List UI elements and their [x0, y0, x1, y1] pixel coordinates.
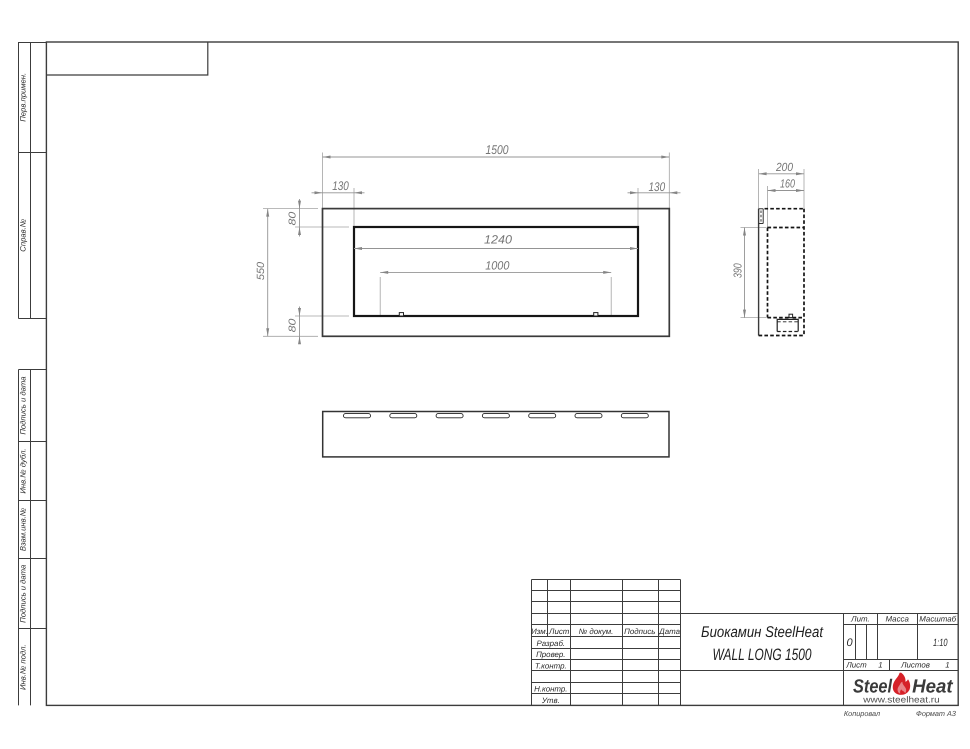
- svg-text:390: 390: [733, 263, 745, 278]
- svg-text:WALL LONG 1500: WALL LONG 1500: [713, 646, 813, 664]
- svg-text:Справ.№: Справ.№: [19, 218, 28, 251]
- svg-text:Инв.№ подл.: Инв.№ подл.: [19, 644, 28, 690]
- svg-text:80: 80: [288, 318, 299, 332]
- svg-text:Провер.: Провер.: [536, 650, 565, 659]
- svg-text:1:10: 1:10: [933, 637, 948, 649]
- svg-text:Разраб.: Разраб.: [537, 639, 566, 648]
- svg-text:Н.контр.: Н.контр.: [534, 684, 567, 693]
- svg-text:Инв.№ дубл.: Инв.№ дубл.: [19, 448, 28, 493]
- svg-text:Дата: Дата: [658, 627, 680, 636]
- svg-text:550: 550: [255, 262, 267, 280]
- svg-text:1000: 1000: [485, 259, 509, 273]
- svg-text:Взам.инв.№: Взам.инв.№: [19, 507, 28, 551]
- svg-text:Масштаб: Масштаб: [919, 615, 956, 624]
- svg-text:80: 80: [288, 211, 299, 225]
- svg-text:Изм.: Изм.: [531, 627, 548, 636]
- svg-text:130: 130: [332, 179, 349, 193]
- svg-text:1240: 1240: [484, 233, 512, 247]
- svg-text:Листов: Листов: [900, 661, 930, 670]
- svg-text:Формат А3: Формат А3: [916, 709, 956, 718]
- svg-text:Масса: Масса: [886, 615, 910, 624]
- svg-text:1500: 1500: [486, 143, 509, 157]
- svg-text:Подпись и дата: Подпись и дата: [19, 564, 28, 623]
- svg-text:Подпись и дата: Подпись и дата: [19, 376, 28, 435]
- svg-text:0: 0: [846, 637, 853, 649]
- svg-text:1: 1: [945, 661, 949, 670]
- svg-text:Лист: Лист: [548, 627, 570, 636]
- svg-text:www.steelheat.ru: www.steelheat.ru: [862, 695, 940, 705]
- svg-text:Утв.: Утв.: [541, 696, 560, 705]
- svg-text:Подпись: Подпись: [624, 627, 655, 636]
- svg-text:Лист: Лист: [845, 661, 867, 670]
- svg-text:Перв.примен.: Перв.примен.: [19, 73, 28, 122]
- svg-text:Т.контр.: Т.контр.: [535, 661, 567, 670]
- svg-text:130: 130: [649, 180, 666, 194]
- svg-text:1: 1: [878, 661, 882, 670]
- svg-text:Лит.: Лит.: [850, 615, 869, 624]
- svg-text:Биокамин SteelHeat: Биокамин SteelHeat: [701, 624, 824, 641]
- svg-text:Копировал: Копировал: [844, 709, 880, 718]
- svg-text:№ докум.: № докум.: [579, 627, 614, 636]
- svg-text:200: 200: [775, 160, 793, 174]
- svg-text:160: 160: [780, 176, 795, 190]
